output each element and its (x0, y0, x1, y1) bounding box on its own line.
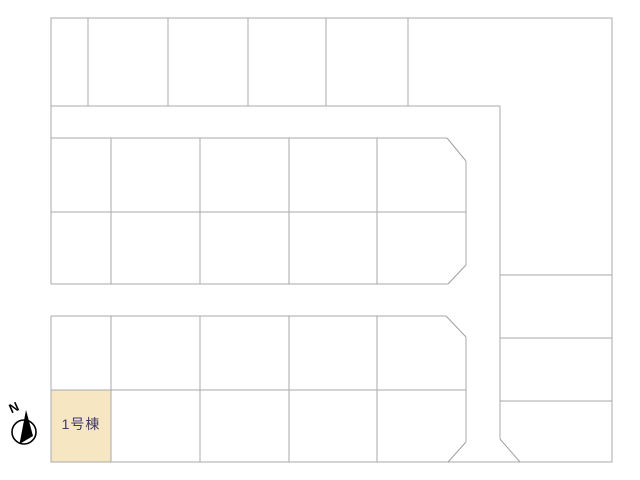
compass-north-label: N (7, 399, 22, 417)
lot-map-drawing: 1号棟 N (0, 0, 640, 480)
middle-block-corner-diagonals (447, 138, 466, 284)
top-row-lot-lines (51, 18, 500, 106)
bottom-block-lot-lines (51, 316, 466, 462)
site-boundary-line (51, 18, 612, 462)
middle-block-lot-lines (51, 138, 466, 284)
road-flare-diagonal (500, 439, 520, 462)
right-column-lot-lines (500, 275, 612, 401)
compass-icon: N (7, 399, 36, 444)
site-plan-map: 1号棟 N (0, 0, 640, 480)
lot-1-label: 1号棟 (62, 416, 101, 432)
bottom-block-corner-diagonals (446, 316, 466, 462)
